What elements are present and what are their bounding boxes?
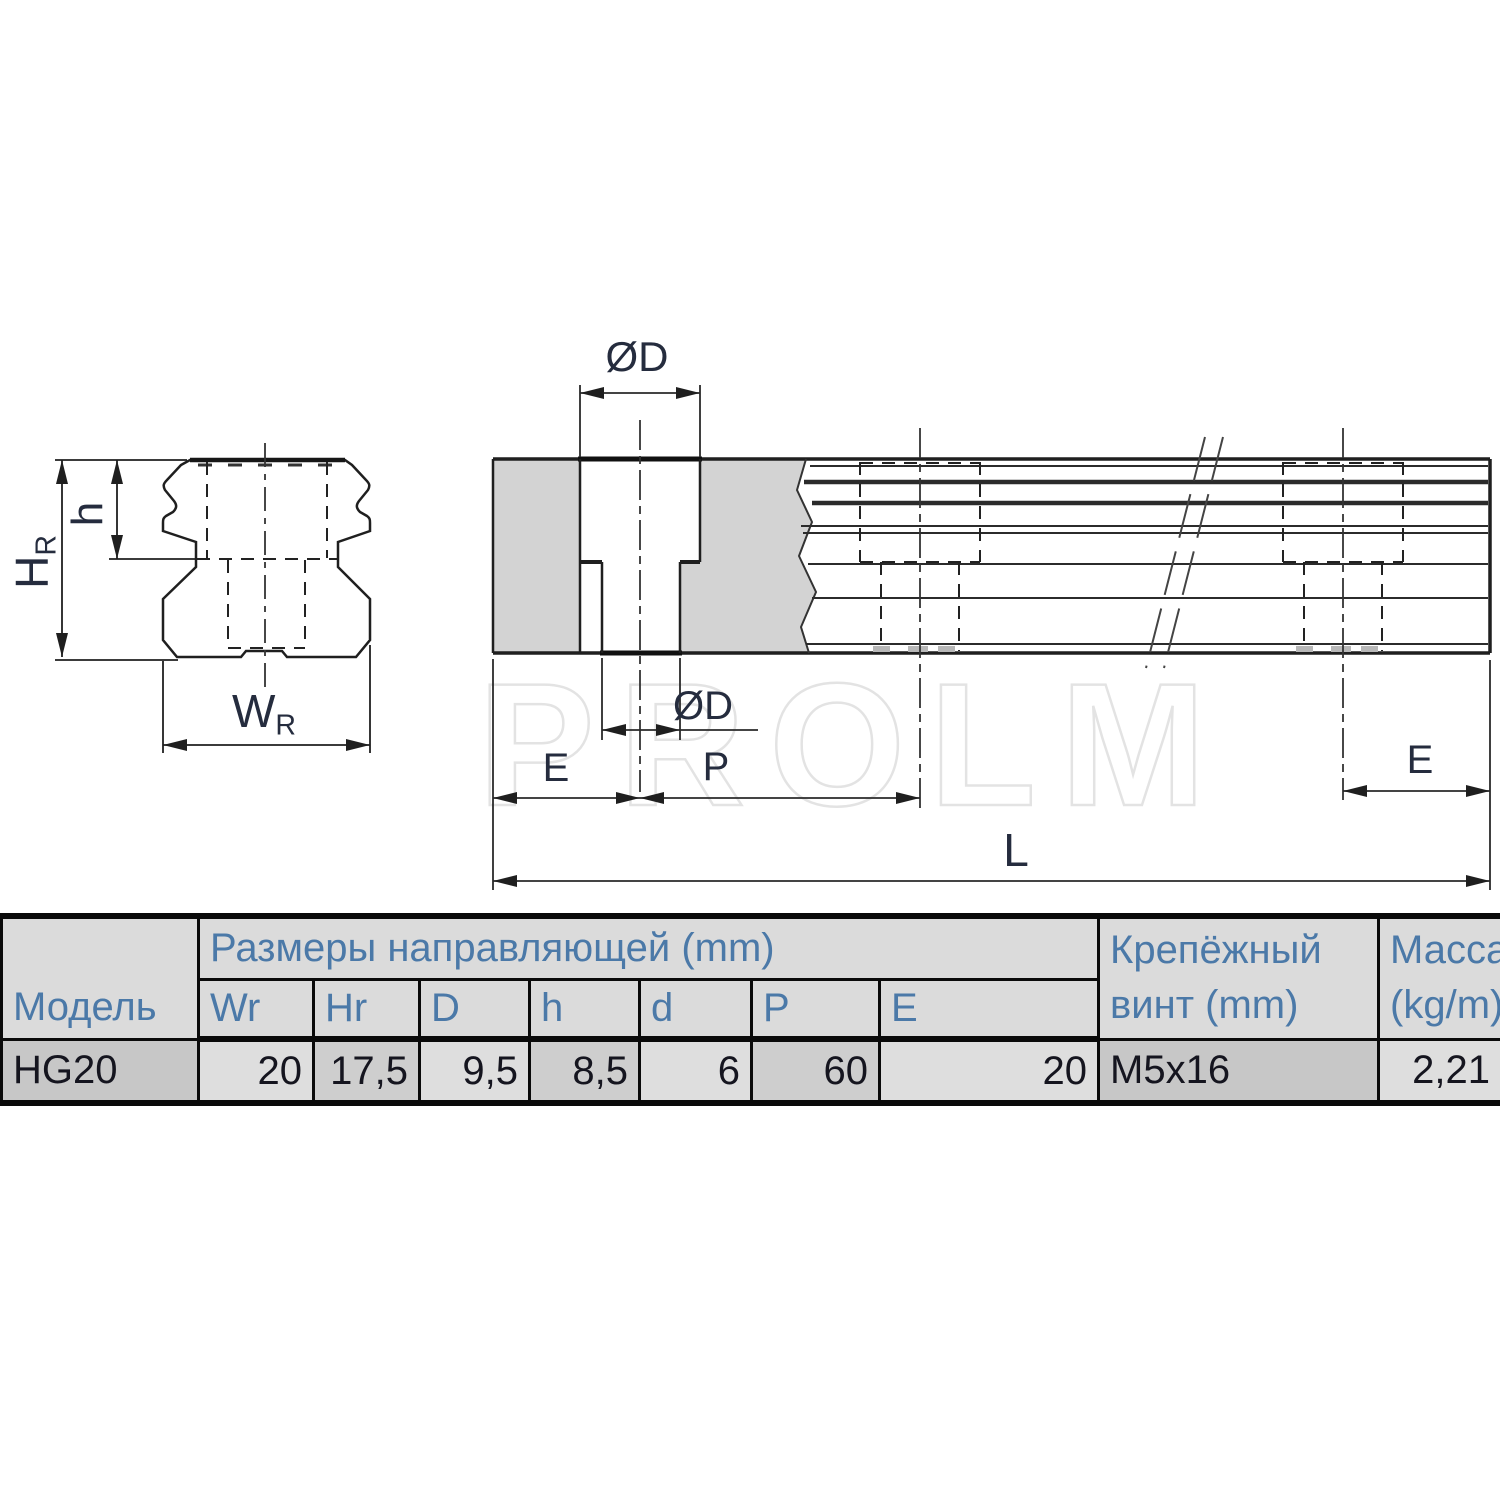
section-fill-left [493, 459, 580, 653]
value-screw: M5x16 [1099, 1039, 1379, 1103]
header-col-h: h [530, 980, 640, 1040]
label-OD-hole: ØD [673, 686, 733, 726]
break-lines [1146, 437, 1223, 668]
value-Wr: 20 [199, 1039, 314, 1103]
dimension-P [640, 792, 920, 804]
label-E-right: E [1407, 740, 1434, 780]
header-col-E: E [880, 980, 1099, 1040]
table-row: HG20 20 17,5 9,5 8,5 6 60 20 M5x16 2,21 [2, 1039, 1500, 1103]
dimension-L [493, 875, 1490, 887]
side-view [493, 420, 1490, 812]
page: PROLM [0, 0, 1500, 1500]
value-P: 60 [752, 1039, 880, 1103]
value-d: 6 [640, 1039, 752, 1103]
header-col-Hr: Hr [314, 980, 420, 1040]
rail-technical-drawing [0, 0, 1500, 913]
spec-table: Модель Размеры направляющей (mm) Крепёжн… [0, 913, 1500, 1106]
header-model: Модель [2, 916, 199, 1039]
hidden-holes [860, 462, 1403, 651]
cross-section-view [55, 443, 370, 753]
label-P: P [703, 747, 730, 787]
label-h: h [66, 502, 110, 526]
label-HR: HR [9, 535, 62, 589]
header-col-P: P [752, 980, 880, 1040]
header-mounting-screw: Крепёжный винт (mm) [1099, 916, 1379, 1039]
header-col-D: D [420, 980, 530, 1040]
value-E: 20 [880, 1039, 1099, 1103]
value-h: 8,5 [530, 1039, 640, 1103]
header-col-Wr: Wr [199, 980, 314, 1040]
value-model: HG20 [2, 1039, 199, 1103]
label-L: L [1003, 827, 1029, 873]
dimension-E-left [493, 792, 640, 804]
header-rail-dimensions-group: Размеры направляющей (mm) [199, 916, 1099, 980]
label-OD-top: ØD [606, 336, 669, 378]
hidden-bottom-marks [873, 646, 1378, 652]
rail-groove-lines [801, 466, 1488, 644]
value-Hr: 17,5 [314, 1039, 420, 1103]
header-col-d: d [640, 980, 752, 1040]
value-D: 9,5 [420, 1039, 530, 1103]
label-WR: WR [232, 688, 296, 741]
label-E-left: E [543, 748, 570, 788]
value-mass: 2,21 [1379, 1039, 1500, 1103]
dimension-E-right [1343, 785, 1490, 797]
header-mass: Масса (kg/m) [1379, 916, 1500, 1039]
